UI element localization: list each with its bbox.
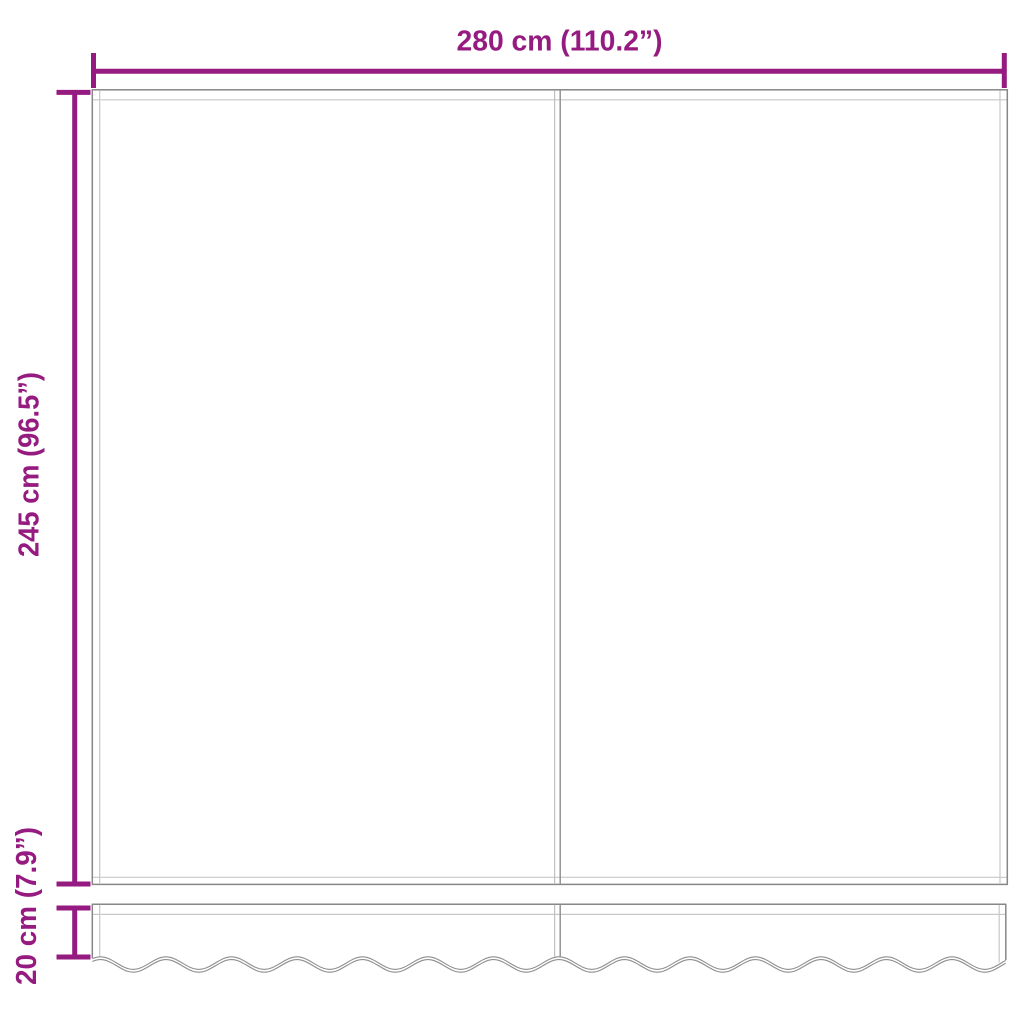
svg-text:280 cm (110.2”): 280 cm (110.2”) <box>457 26 663 58</box>
svg-text:20 cm (7.9”): 20 cm (7.9”) <box>11 827 43 985</box>
svg-text:245 cm (96.5”): 245 cm (96.5”) <box>14 372 46 557</box>
